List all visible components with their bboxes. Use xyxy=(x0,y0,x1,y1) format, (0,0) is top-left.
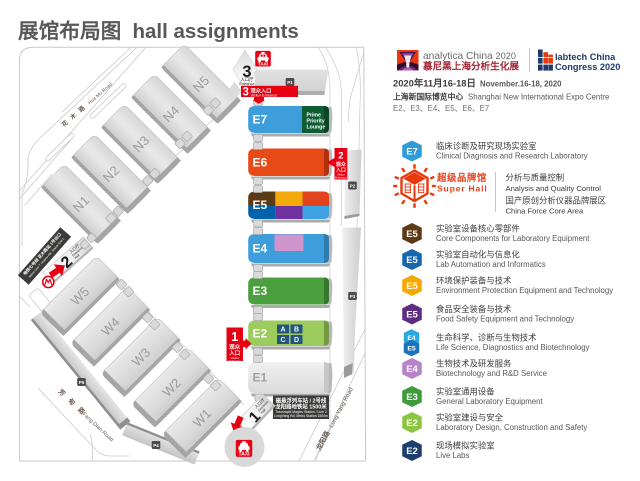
svg-text:E1: E1 xyxy=(253,371,268,385)
svg-text:E3: E3 xyxy=(406,392,418,403)
svg-text:Laboratory Design, Constructio: Laboratory Design, Construction and Safe… xyxy=(436,423,587,432)
svg-text:LongYang Rd. Metro Station 150: LongYang Rd. Metro Station 1500m xyxy=(274,414,328,418)
svg-text:E5: E5 xyxy=(407,345,416,352)
svg-text:November.16-18, 2020: November.16-18, 2020 xyxy=(480,79,562,88)
svg-text:E6: E6 xyxy=(253,155,268,169)
svg-text:P4: P4 xyxy=(153,443,159,448)
svg-text:实验室自动化与信息化: 实验室自动化与信息化 xyxy=(436,249,520,259)
svg-text:B: B xyxy=(294,327,299,334)
svg-text:2020年11月16-18日: 2020年11月16-18日 xyxy=(393,78,476,89)
svg-text:Lab Automation and Informatics: Lab Automation and Informatics xyxy=(436,260,546,269)
svg-text:Super Hall: Super Hall xyxy=(437,184,488,194)
svg-text:E7: E7 xyxy=(253,113,268,127)
svg-text:实验室设备核心零部件: 实验室设备核心零部件 xyxy=(436,223,520,233)
svg-text:Entrance: Entrance xyxy=(229,359,242,363)
svg-text:P3: P3 xyxy=(350,294,356,299)
svg-text:超级品牌馆: 超级品牌馆 xyxy=(436,172,487,183)
svg-text:实验室通用设备: 实验室通用设备 xyxy=(436,386,495,396)
svg-text:国产原创分析仪器品牌展区: 国产原创分析仪器品牌展区 xyxy=(506,196,607,206)
svg-text:Life Science, Diagnostics and: Life Science, Diagnostics and Biotechnol… xyxy=(436,343,590,352)
svg-text:观众: 观众 xyxy=(229,343,240,351)
svg-text:E5: E5 xyxy=(406,281,418,292)
svg-text:General Laboratory Equipment: General Laboratory Equipment xyxy=(436,397,543,406)
svg-text:磁悬浮列车站 / 2号线: 磁悬浮列车站 / 2号线 xyxy=(276,397,327,405)
svg-text:E5: E5 xyxy=(406,309,418,320)
svg-text:3: 3 xyxy=(243,87,249,99)
svg-text:E5: E5 xyxy=(406,255,418,266)
svg-text:E4: E4 xyxy=(253,242,268,256)
svg-text:实验室建设与安全: 实验室建设与安全 xyxy=(436,412,504,422)
svg-text:E3: E3 xyxy=(253,284,268,298)
svg-text:E2: E2 xyxy=(406,418,418,429)
svg-text:E2、E3、E4、E5、E6、E7: E2、E3、E4、E5、E6、E7 xyxy=(393,104,489,113)
svg-text:2: 2 xyxy=(338,151,343,162)
svg-text:1: 1 xyxy=(231,329,238,344)
svg-text:E2: E2 xyxy=(253,326,268,340)
svg-text:E5: E5 xyxy=(406,229,418,240)
svg-text:TAXI: TAXI xyxy=(238,451,250,457)
svg-text:E5: E5 xyxy=(253,198,268,212)
svg-text:P2: P2 xyxy=(350,183,356,188)
svg-text:E4: E4 xyxy=(406,364,418,375)
svg-text:分析与质量控制: 分析与质量控制 xyxy=(506,173,565,183)
svg-text:上海新国际博览中心: 上海新国际博览中心 xyxy=(393,92,463,102)
svg-text:环境保护装备与技术: 环境保护装备与技术 xyxy=(436,275,512,285)
svg-text:P5: P5 xyxy=(79,380,85,385)
svg-text:慕尼黑上海分析生化展: 慕尼黑上海分析生化展 xyxy=(422,60,519,72)
svg-text:Biotechnology and R&D Service: Biotechnology and R&D Service xyxy=(436,369,547,378)
svg-text:Environment Protection Equipme: Environment Protection Equipment and Tec… xyxy=(436,286,613,295)
svg-text:Analysis and Quality Control: Analysis and Quality Control xyxy=(506,184,602,193)
svg-text:TAXI: TAXI xyxy=(258,62,268,67)
svg-text:Lounge: Lounge xyxy=(307,125,326,131)
svg-text:生物技术及研发服务: 生物技术及研发服务 xyxy=(436,358,512,368)
svg-text:E7: E7 xyxy=(406,146,418,157)
svg-text:Congress 2020: Congress 2020 xyxy=(555,62,620,72)
svg-text:C: C xyxy=(280,337,285,344)
svg-text:Food Safety Equipment and Tech: Food Safety Equipment and Technology xyxy=(436,315,574,324)
svg-text:现场模拟实验室: 现场模拟实验室 xyxy=(436,440,495,450)
svg-text:labtech China: labtech China xyxy=(555,52,616,62)
svg-text:Entrance: Entrance xyxy=(335,176,347,180)
svg-text:E2: E2 xyxy=(406,446,418,457)
svg-text:生命科学、诊断与生物技术: 生命科学、诊断与生物技术 xyxy=(436,332,537,342)
svg-text:Shanghai New International Exp: Shanghai New International Expo Centre xyxy=(468,93,609,102)
svg-text:P1: P1 xyxy=(287,80,293,85)
svg-text:Core Components for Laboratory: Core Components for Laboratory Equipment xyxy=(436,234,590,243)
svg-text:Clinical Diagnosis and Researc: Clinical Diagnosis and Research Laborato… xyxy=(436,152,588,161)
svg-text:Live Labs: Live Labs xyxy=(436,451,469,460)
svg-text:D: D xyxy=(294,337,299,344)
svg-text:临床诊断及研究现场实验室: 临床诊断及研究现场实验室 xyxy=(436,141,537,151)
svg-text:食品安全装备与技术: 食品安全装备与技术 xyxy=(436,304,512,314)
svg-text:A: A xyxy=(280,327,285,334)
svg-text:China Force Core Area: China Force Core Area xyxy=(506,207,584,216)
